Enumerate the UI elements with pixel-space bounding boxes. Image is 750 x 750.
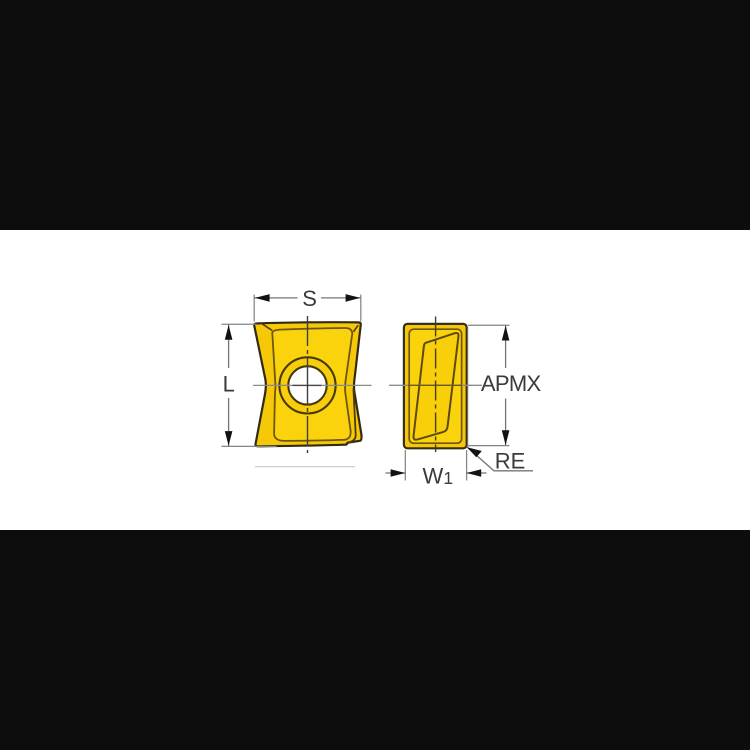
svg-text:W1: W1 <box>423 463 454 488</box>
svg-text:RE: RE <box>495 448 526 473</box>
svg-text:S: S <box>302 286 317 311</box>
svg-text:APMX: APMX <box>481 371 542 396</box>
svg-text:L: L <box>223 372 235 397</box>
